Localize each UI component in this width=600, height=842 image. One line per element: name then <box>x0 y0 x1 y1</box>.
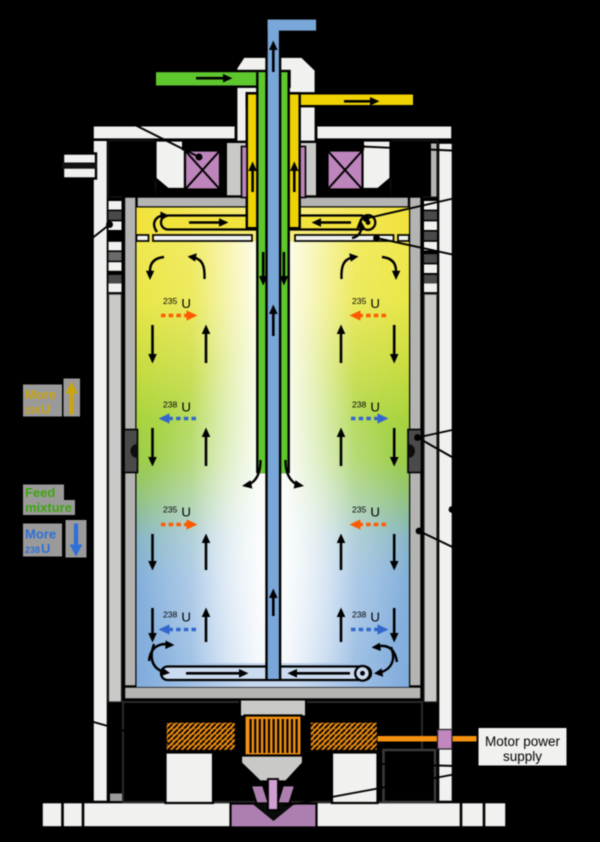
svg-text:More: More <box>25 527 56 542</box>
svg-text:More: More <box>25 387 56 402</box>
svg-text:mixture: mixture <box>25 500 72 515</box>
svg-text:supply: supply <box>503 749 542 764</box>
svg-text:Motor power: Motor power <box>485 734 561 749</box>
svg-text:Feed: Feed <box>25 485 55 500</box>
